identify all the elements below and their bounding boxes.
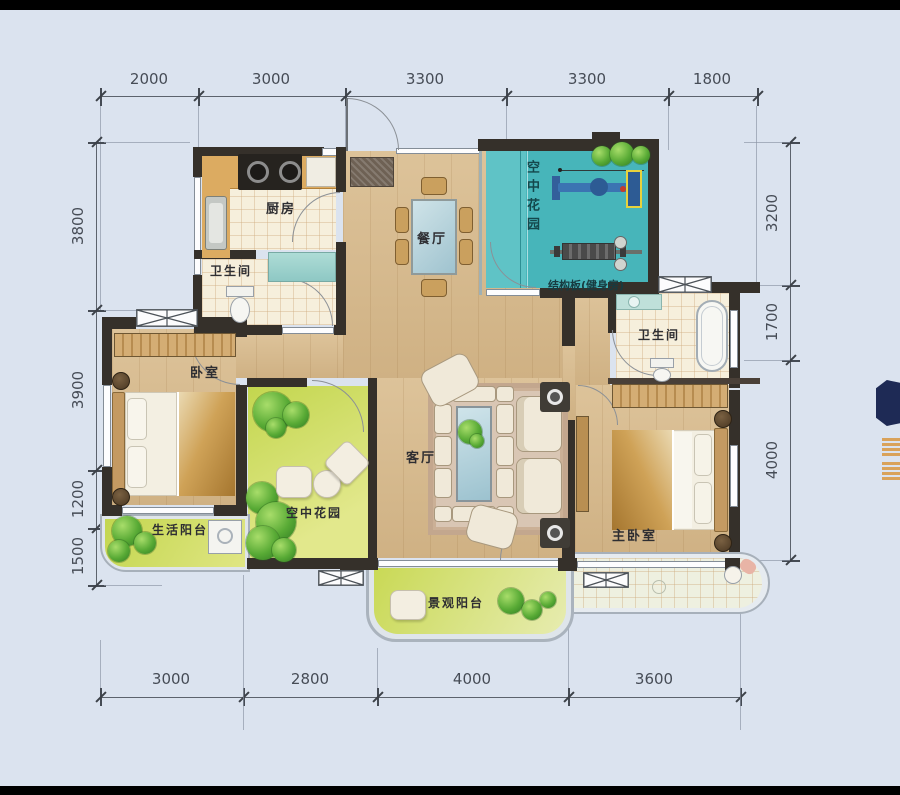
- dimension-line: [96, 142, 97, 585]
- wall: [648, 139, 659, 299]
- plant: [522, 600, 542, 620]
- room-label-dining: 餐厅: [417, 228, 447, 247]
- pillow: [127, 446, 147, 488]
- wall: [562, 288, 575, 346]
- dining-chair: [459, 207, 473, 233]
- barbell-collar: [554, 246, 560, 257]
- wall: [336, 147, 346, 192]
- gym-machine-seat: [590, 178, 608, 196]
- dim-label: 1500: [69, 524, 87, 588]
- wall: [102, 505, 122, 516]
- toilet-bowl: [653, 368, 671, 382]
- dining-chair: [421, 177, 447, 195]
- bed-headboard: [112, 392, 125, 496]
- dim-label: 4000: [440, 670, 504, 688]
- burner: [279, 161, 301, 183]
- leader-dot: [558, 168, 562, 172]
- dimension-line: [790, 142, 791, 560]
- balcony-table: [724, 566, 742, 584]
- shower-area: [268, 252, 336, 282]
- floor-drain: [652, 580, 666, 594]
- sofa-cushion: [434, 436, 452, 466]
- window: [282, 327, 334, 334]
- plant: [610, 142, 634, 166]
- nightstand: [112, 372, 130, 390]
- entry-door-arc: [347, 98, 399, 150]
- gym-stool: [614, 236, 627, 249]
- room-label-bathroom2: 卫生间: [638, 326, 680, 343]
- dining-chair: [395, 207, 409, 233]
- wall: [340, 558, 378, 570]
- stepping-stone: [390, 590, 426, 620]
- recliner: [516, 458, 562, 514]
- plant: [283, 402, 309, 428]
- wall: [368, 378, 377, 568]
- flue-symbol: [136, 309, 198, 327]
- room-label-bedroom: 卧室: [190, 362, 220, 381]
- flue-symbol: [318, 570, 364, 586]
- barbell-plates: [562, 243, 616, 260]
- dim-label: 3200: [763, 181, 781, 245]
- plant: [540, 592, 556, 608]
- room-label-sky-garden-mid: 空中花园: [286, 504, 342, 521]
- wall: [214, 505, 247, 516]
- window: [577, 561, 727, 568]
- room-label-life-balcony: 生活阳台: [152, 521, 208, 538]
- room-label-master-bedroom: 主卧室: [612, 525, 657, 544]
- nightstand: [714, 410, 732, 428]
- side-table-lamp: [547, 525, 563, 541]
- floor-plan-canvas: 2000 3000 3300 3300 1800 3000 2800 4000 …: [0, 0, 900, 795]
- wardrobe: [612, 384, 728, 408]
- wall: [102, 317, 112, 385]
- room-label-bathroom1: 卫生间: [210, 262, 252, 279]
- stepping-stone: [276, 466, 312, 498]
- gym-machine-frame: [626, 170, 642, 208]
- watermark-text-partial: [882, 438, 900, 458]
- window: [730, 310, 738, 368]
- dim-label: 2000: [117, 70, 181, 88]
- pillow: [694, 434, 712, 476]
- burner: [247, 161, 269, 183]
- wash-basin: [628, 296, 640, 308]
- wardrobe: [114, 333, 236, 357]
- sofa-corner: [434, 506, 452, 522]
- dim-label: 1700: [763, 290, 781, 354]
- watermark-logo: [876, 380, 900, 426]
- dim-label: 3600: [622, 670, 686, 688]
- entry-door-leaf: [346, 98, 348, 151]
- gym-stool: [614, 258, 627, 271]
- nightstand: [714, 534, 732, 552]
- window: [396, 148, 480, 154]
- window: [486, 289, 540, 296]
- sofa-corner: [496, 386, 514, 402]
- dining-chair: [395, 239, 409, 265]
- wall: [247, 378, 307, 387]
- plant: [272, 538, 296, 562]
- side-table-lamp: [547, 389, 563, 405]
- gym-machine-detail: [620, 186, 626, 192]
- dim-label: 3000: [139, 670, 203, 688]
- window: [194, 177, 201, 275]
- dim-label: 3300: [393, 70, 457, 88]
- bed-headboard: [714, 428, 728, 532]
- room-label-living: 客厅: [406, 447, 436, 466]
- room-label-gym-note: 结构板(健身房): [548, 277, 624, 293]
- plant: [266, 418, 286, 438]
- watermark-text-partial: [882, 462, 900, 482]
- flue-symbol: [583, 572, 629, 588]
- room-label-kitchen: 厨房: [266, 198, 296, 217]
- room-label-sky-garden-top: 空中花园: [522, 160, 541, 236]
- sofa-cushion: [434, 468, 452, 498]
- window: [103, 385, 111, 467]
- partition-line: [479, 151, 482, 295]
- dimension-line: [100, 697, 740, 698]
- nightstand: [112, 488, 130, 506]
- bed-blanket: [177, 392, 235, 496]
- window: [378, 560, 564, 567]
- dim-label: 1800: [680, 70, 744, 88]
- flue-symbol: [658, 276, 712, 293]
- dining-chair: [421, 279, 447, 297]
- dining-chair: [459, 239, 473, 265]
- dim-label: 2800: [278, 670, 342, 688]
- bed-runner: [674, 432, 692, 528]
- wall: [710, 282, 760, 293]
- tv-cabinet: [576, 416, 589, 512]
- bed-blanket: [612, 430, 674, 530]
- pillow: [694, 482, 712, 524]
- plant: [632, 146, 650, 164]
- dim-label: 4000: [763, 428, 781, 492]
- plant: [498, 588, 524, 614]
- window: [122, 507, 214, 514]
- toilet-bowl: [230, 297, 250, 323]
- wall: [336, 242, 346, 334]
- plant: [108, 540, 130, 562]
- doormat: [350, 157, 394, 187]
- room-label-view-balcony: 景观阳台: [428, 594, 484, 611]
- dim-label: 1200: [69, 467, 87, 531]
- wall: [334, 325, 346, 335]
- wall: [592, 132, 620, 140]
- bathtub-inner: [701, 306, 723, 366]
- toilet-tank: [226, 286, 254, 297]
- window: [730, 445, 738, 507]
- plant: [470, 434, 484, 448]
- toilet-tank: [650, 358, 674, 368]
- letterbox-bottom: [0, 786, 900, 795]
- wall: [236, 385, 247, 507]
- wall: [608, 293, 616, 333]
- kitchen-sink-basin: [209, 203, 223, 243]
- sofa-cushion: [496, 404, 514, 434]
- sofa-cushion: [434, 404, 452, 434]
- pillow: [127, 398, 147, 440]
- sofa-cushion: [496, 436, 514, 466]
- washing-machine-door: [217, 528, 233, 544]
- dim-label: 3800: [69, 194, 87, 258]
- dim-label: 3300: [555, 70, 619, 88]
- dim-label: 3900: [69, 358, 87, 422]
- sofa-cushion: [496, 468, 514, 498]
- fridge: [306, 157, 336, 187]
- letterbox-top: [0, 0, 900, 10]
- dim-label: 3000: [239, 70, 303, 88]
- wall: [193, 147, 202, 177]
- plant: [592, 146, 612, 166]
